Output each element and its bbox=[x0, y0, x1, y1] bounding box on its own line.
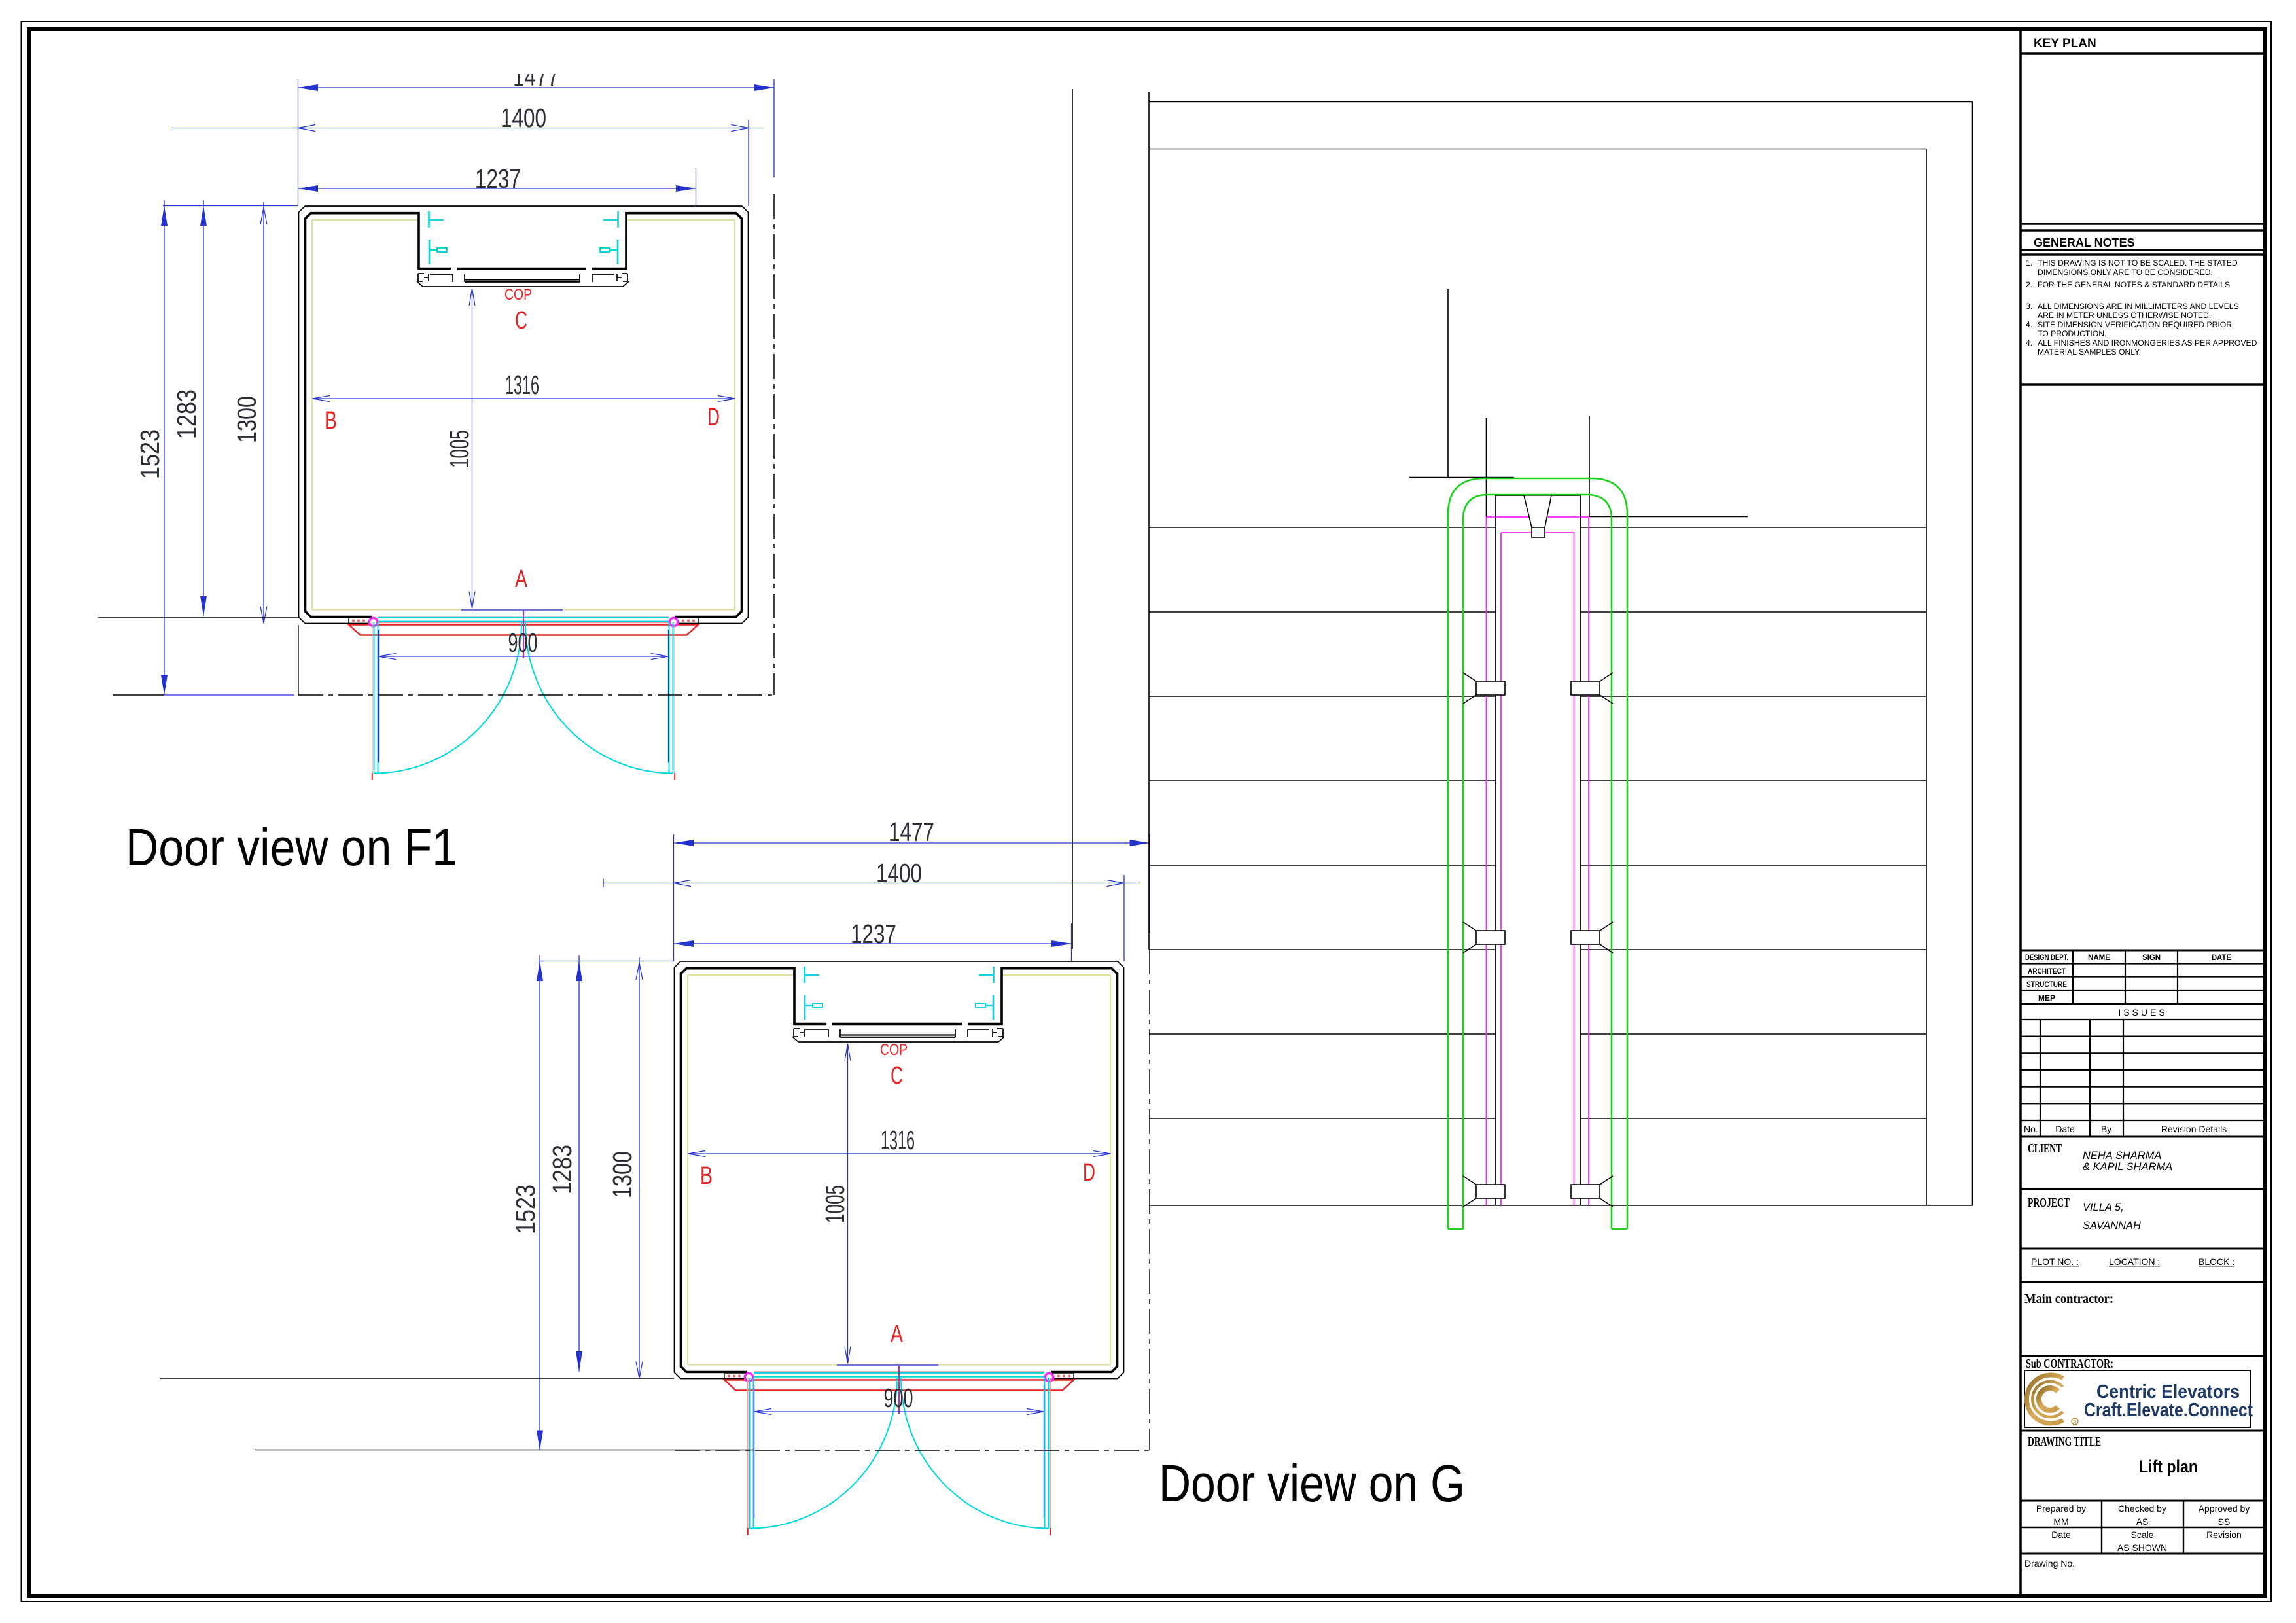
svg-text:PROJECT: PROJECT bbox=[2028, 1196, 2070, 1210]
svg-text:MM: MM bbox=[2053, 1516, 2068, 1527]
svg-text:Craft.Elevate.Connect: Craft.Elevate.Connect bbox=[2084, 1400, 2253, 1421]
svg-text:SS: SS bbox=[2218, 1516, 2231, 1527]
svg-text:ISSUES: ISSUES bbox=[2118, 1007, 2167, 1018]
svg-text:Date: Date bbox=[2051, 1529, 2071, 1540]
svg-text:THIS DRAWING IS NOT TO BE SCAL: THIS DRAWING IS NOT TO BE SCALED. THE ST… bbox=[2038, 259, 2238, 268]
svg-text:MEP: MEP bbox=[2038, 993, 2055, 1003]
svg-text:DESIGN DEPT.: DESIGN DEPT. bbox=[2025, 953, 2068, 962]
svg-text:Approved by: Approved by bbox=[2199, 1503, 2250, 1514]
svg-text:ARE IN METER UNLESS OTHERWISE: ARE IN METER UNLESS OTHERWISE NOTED. bbox=[2038, 311, 2211, 320]
svg-text:R: R bbox=[2073, 1419, 2077, 1425]
svg-text:Lift plan: Lift plan bbox=[2139, 1457, 2198, 1476]
svg-text:SAVANNAH: SAVANNAH bbox=[2083, 1220, 2141, 1232]
svg-text:NEHA SHARMA: NEHA SHARMA bbox=[2083, 1150, 2161, 1162]
svg-text:TO PRODUCTION.: TO PRODUCTION. bbox=[2038, 329, 2106, 338]
svg-text:Prepared by: Prepared by bbox=[2036, 1503, 2086, 1514]
svg-text:ALL DIMENSIONS ARE IN MILLIME: ALL DIMENSIONS ARE IN MILLIMETERS AND LE… bbox=[2038, 302, 2239, 311]
svg-text:SITE DIMENSION VERIFICATION RE: SITE DIMENSION VERIFICATION REQUIRED PRI… bbox=[2038, 320, 2232, 329]
svg-text:Date: Date bbox=[2055, 1124, 2075, 1134]
svg-text:3.: 3. bbox=[2026, 302, 2032, 311]
svg-text:DRAWING TITLE: DRAWING TITLE bbox=[2028, 1435, 2101, 1449]
svg-text:CLIENT: CLIENT bbox=[2028, 1141, 2062, 1156]
svg-text:GENERAL NOTES: GENERAL NOTES bbox=[2034, 236, 2135, 249]
svg-text:BLOCK :: BLOCK : bbox=[2199, 1257, 2234, 1267]
svg-text:Checked by: Checked by bbox=[2118, 1503, 2166, 1514]
svg-text:No.: No. bbox=[2024, 1124, 2038, 1134]
svg-text:Door view on G: Door view on G bbox=[1159, 1454, 1465, 1512]
svg-text:FOR THE GENERAL NOTES & STANDA: FOR THE GENERAL NOTES & STANDARD DETAILS bbox=[2038, 280, 2230, 289]
svg-text:1.: 1. bbox=[2026, 259, 2032, 268]
svg-text:AS: AS bbox=[2136, 1516, 2149, 1527]
svg-text:LOCATION :: LOCATION : bbox=[2109, 1257, 2160, 1267]
svg-text:Revision: Revision bbox=[2206, 1529, 2242, 1540]
svg-text:PLOT NO. :: PLOT NO. : bbox=[2031, 1257, 2079, 1267]
svg-text:2.: 2. bbox=[2026, 280, 2032, 289]
svg-text:By: By bbox=[2101, 1124, 2111, 1134]
svg-text:& KAPIL SHARMA: & KAPIL SHARMA bbox=[2083, 1161, 2172, 1173]
svg-text:4.: 4. bbox=[2026, 338, 2032, 348]
svg-text:KEY PLAN: KEY PLAN bbox=[2034, 37, 2096, 50]
svg-text:Main contractor:: Main contractor: bbox=[2024, 1292, 2113, 1306]
svg-text:DATE: DATE bbox=[2212, 953, 2231, 962]
svg-text:SIGN: SIGN bbox=[2142, 953, 2161, 962]
svg-text:DIMENSIONS ONLY ARE TO BE CONS: DIMENSIONS ONLY ARE TO BE CONSIDERED. bbox=[2038, 268, 2213, 277]
svg-text:Door view on F1: Door view on F1 bbox=[126, 818, 457, 876]
svg-text:Revision Details: Revision Details bbox=[2161, 1124, 2227, 1134]
svg-text:VILLA 5,: VILLA 5, bbox=[2083, 1202, 2124, 1213]
svg-text:ALL FINISHES AND IRONMONGERIES: ALL FINISHES AND IRONMONGERIES AS PER AP… bbox=[2038, 338, 2257, 348]
svg-text:Drawing No.: Drawing No. bbox=[2024, 1558, 2075, 1569]
svg-text:Sub CONTRACTOR:: Sub CONTRACTOR: bbox=[2026, 1357, 2113, 1371]
svg-text:ARCHITECT: ARCHITECT bbox=[2028, 967, 2066, 976]
svg-text:4.: 4. bbox=[2026, 320, 2032, 329]
svg-text:Scale: Scale bbox=[2130, 1529, 2153, 1540]
svg-text:NAME: NAME bbox=[2088, 953, 2110, 962]
svg-text:AS SHOWN: AS SHOWN bbox=[2117, 1543, 2167, 1553]
svg-text:STRUCTURE: STRUCTURE bbox=[2026, 980, 2067, 989]
svg-text:MATERIAL SAMPLES ONLY.: MATERIAL SAMPLES ONLY. bbox=[2038, 348, 2141, 357]
